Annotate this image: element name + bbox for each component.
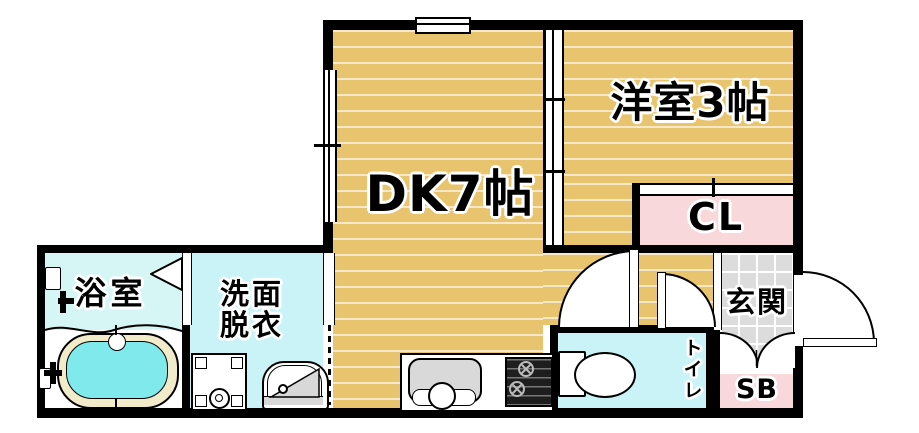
kitchen-faucet	[428, 382, 456, 410]
wall-left-exterior	[37, 245, 45, 418]
wall-right-upper	[793, 20, 803, 274]
room-label-washroom-line1: 洗面	[192, 279, 312, 310]
room-label-washroom: 洗面 脱衣	[192, 279, 312, 342]
wall-middle-horizontal	[543, 245, 793, 253]
window-dk-top	[415, 17, 471, 34]
bathroom-door-opening	[182, 253, 192, 325]
front-door-leaf	[803, 338, 877, 347]
wall-top-right	[467, 20, 803, 30]
room-label-closet: CL	[661, 197, 771, 238]
room-label-washroom-line2: 脱衣	[192, 310, 312, 341]
room-western-floor-notch	[560, 183, 632, 245]
wall-top-left	[323, 20, 415, 30]
washroom-door-opening	[323, 253, 335, 325]
toilet-door-leaf	[629, 249, 639, 328]
entrance-hall-door-leaf	[657, 272, 666, 329]
washing-machine-drain	[209, 388, 230, 409]
wall-bath-washroom	[182, 325, 190, 408]
wall-closet-left	[632, 183, 640, 253]
window-tick	[314, 144, 341, 147]
wash-basin-base	[264, 396, 323, 405]
partition-tick	[544, 98, 565, 101]
wall-dk-left-upper	[323, 20, 333, 70]
bathtub-drain	[108, 333, 126, 351]
room-label-bathroom: 浴室	[58, 276, 163, 311]
wall-toilet-right	[706, 325, 720, 408]
room-label-dk: DK7帖	[340, 167, 560, 221]
bath-wall-fixture	[39, 368, 51, 389]
floorplan: DK7帖 洋室3帖 CL 浴室 洗面 脱衣 玄関 トイレ SB	[0, 0, 919, 433]
room-label-shoebox: SB	[721, 375, 793, 404]
wall-wet-block-top	[37, 245, 333, 253]
room-label-western: 洋室3帖	[580, 80, 800, 125]
front-door-swing	[803, 271, 875, 343]
room-label-toilet: トイレ	[681, 338, 702, 401]
gas-stove	[505, 357, 553, 407]
toilet-bowl	[574, 352, 636, 398]
room-label-entrance: 玄関	[721, 287, 793, 318]
